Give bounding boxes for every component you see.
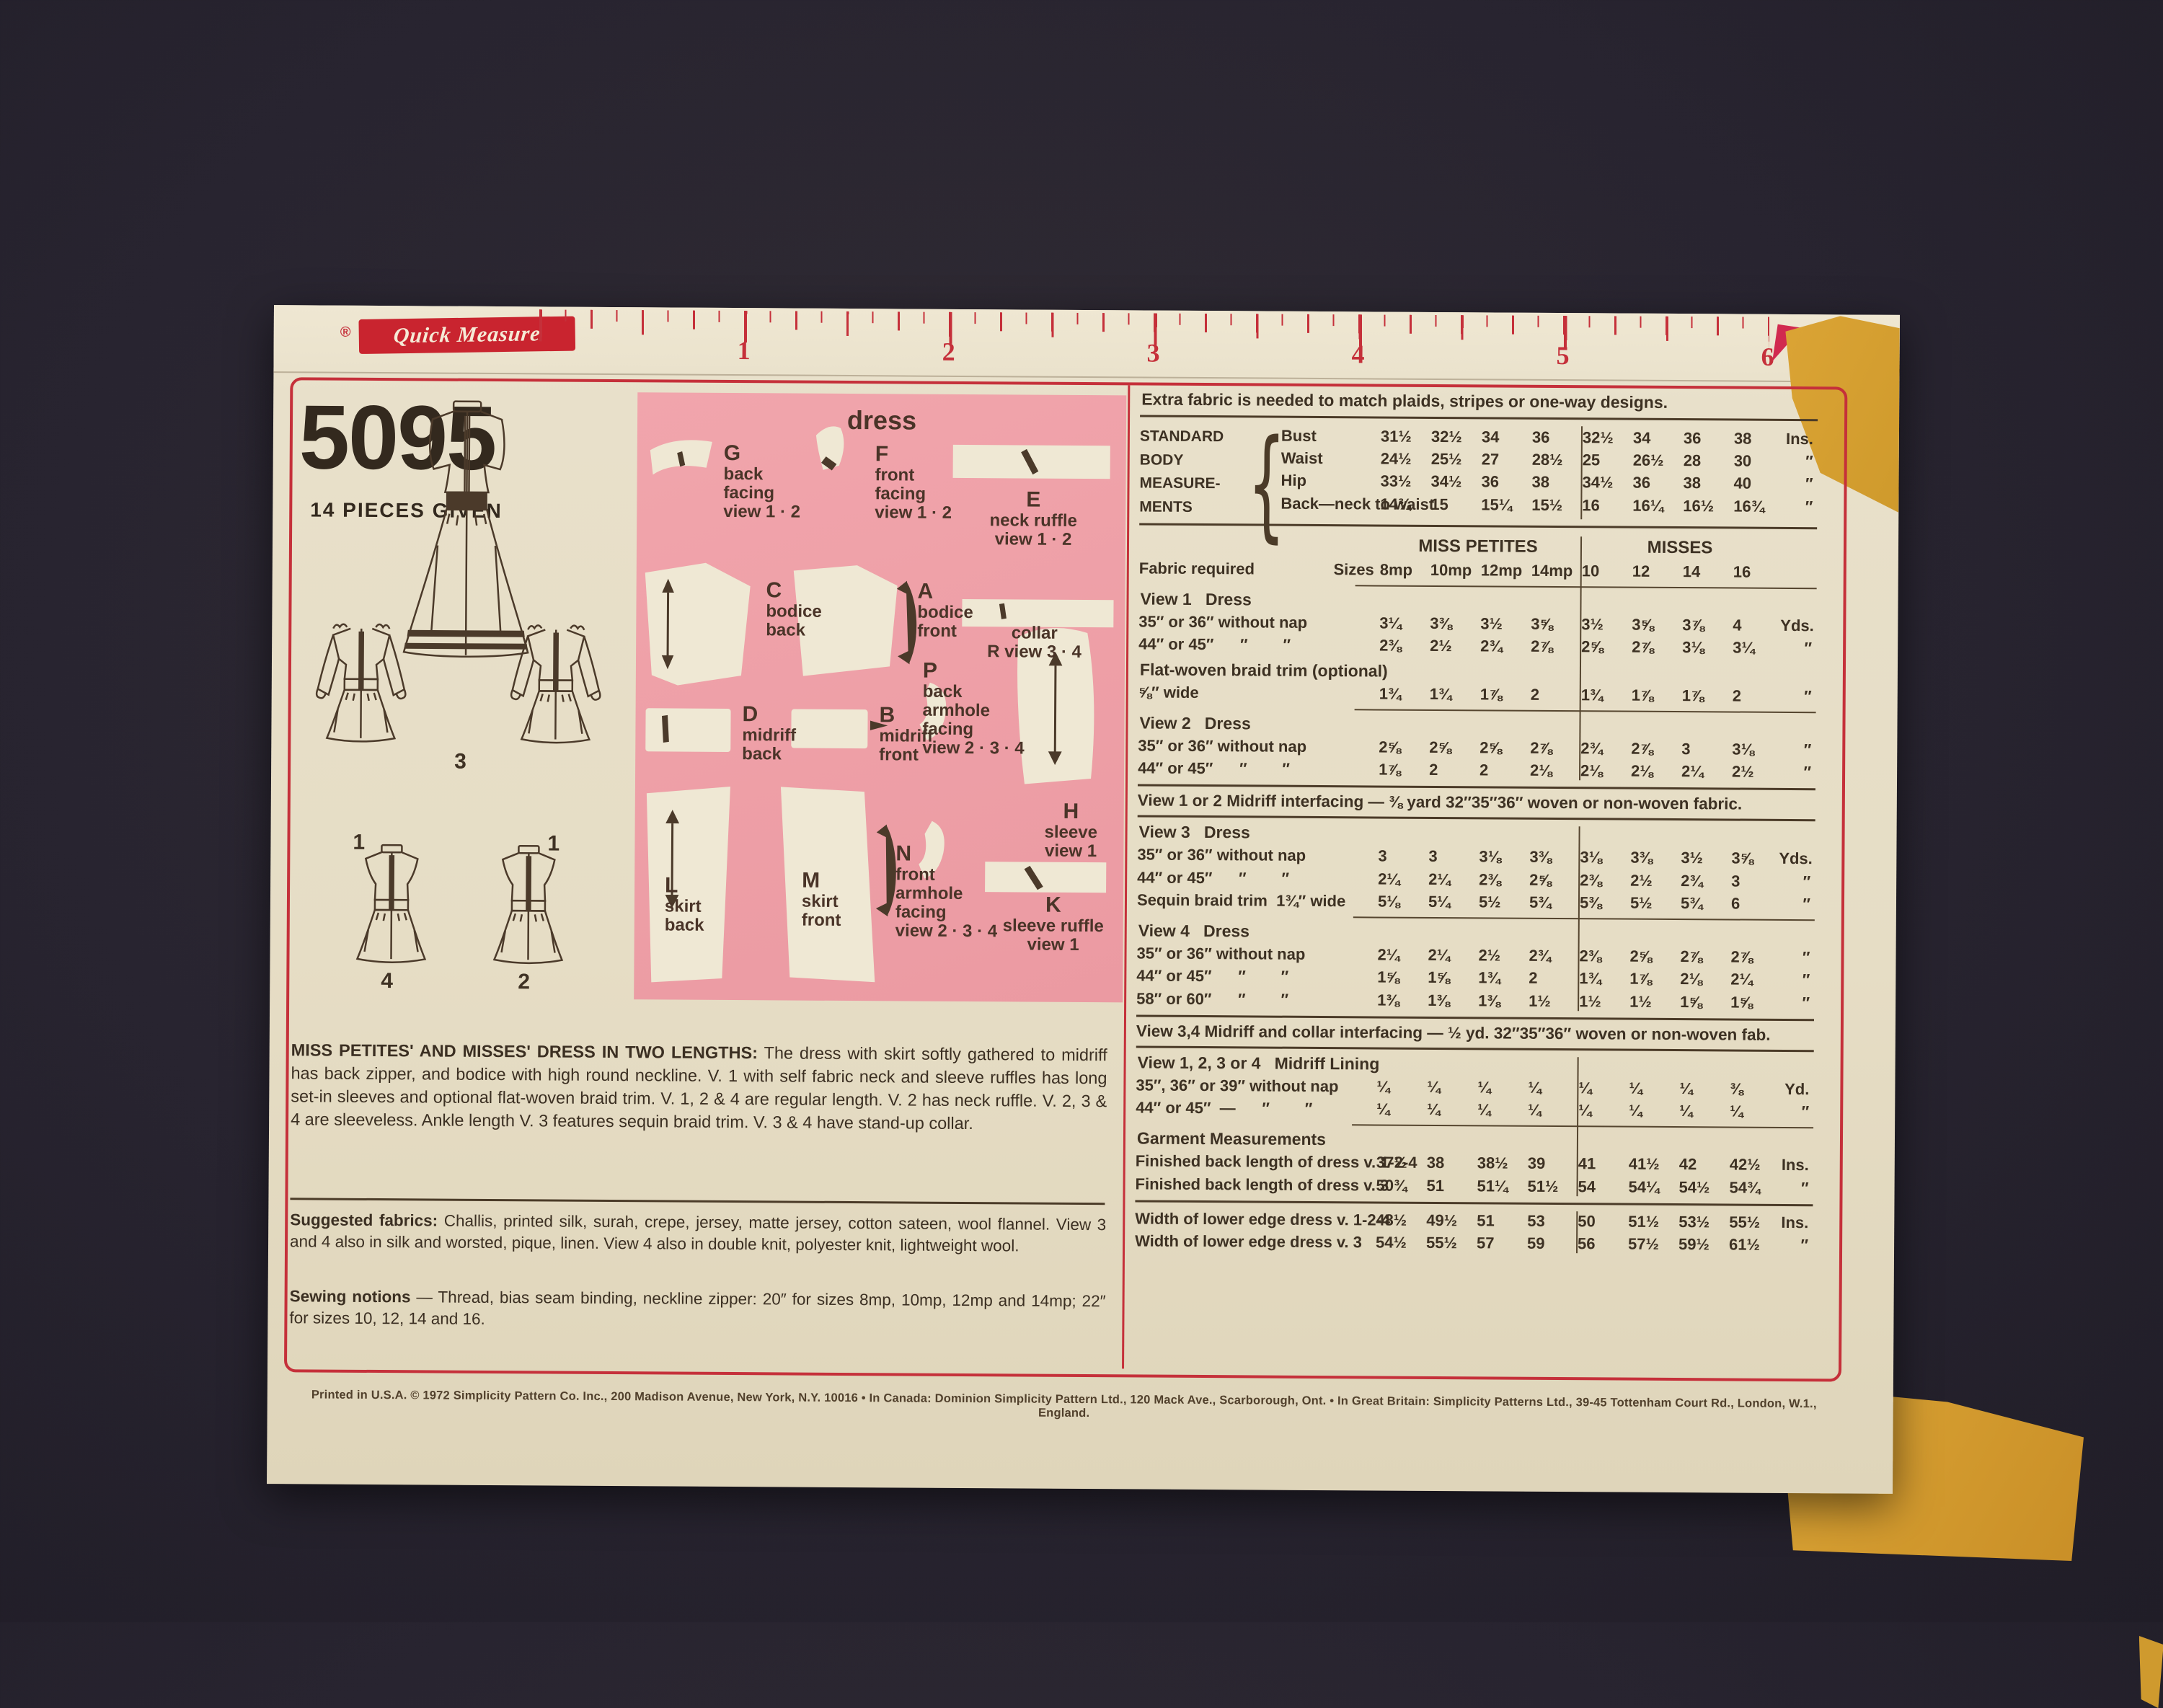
table-cell: 2⅝ <box>1426 736 1477 759</box>
piece-label-line: back <box>766 621 822 640</box>
piece-label-line: facing <box>922 720 1025 740</box>
table-cell: ″ <box>1781 495 1813 518</box>
table-cell: 16½ <box>1680 495 1730 518</box>
view-4-heading: View 4 Dress <box>1138 921 1815 945</box>
table-cell: 5¾ <box>1678 892 1728 915</box>
table-cell: 44″ or 45″ — ″ ″ <box>1136 1097 1374 1120</box>
piece-label-line: front <box>802 911 841 930</box>
table-cell: 35″, 36″ or 39″ without nap <box>1136 1074 1374 1097</box>
table-cell: 2¼ <box>1425 868 1476 891</box>
table-cell: 1¾ <box>1576 968 1627 991</box>
table-cell: 36 <box>1478 471 1529 494</box>
table-cell: 48½ <box>1373 1208 1423 1231</box>
table-cell: 53 <box>1524 1210 1575 1233</box>
table-row: 58″ or 60″ ″ ″1⅜1⅜1⅜1½1½1½1⅝1⅝″ <box>1136 987 1814 1014</box>
table-cell: 59 <box>1524 1232 1575 1255</box>
table-cell: 54¼ <box>1625 1175 1676 1198</box>
ruler-number-2: 2 <box>934 337 963 367</box>
table-cell: ″ <box>1779 761 1811 784</box>
table-cell: 49½ <box>1423 1209 1474 1232</box>
table-cell: ″ <box>1779 870 1810 893</box>
lining-garment-block: View 1, 2, 3 or 4 Midriff Lining 35″, 36… <box>1135 1053 1813 1199</box>
table-cell: 2⅝ <box>1627 945 1677 968</box>
table-cell: ″ <box>1778 991 1810 1014</box>
table-row: Back—neck to waist14¾1515¼15½1616¼16½16¾… <box>1139 491 1817 518</box>
table-cell: 2⅜ <box>1376 634 1427 658</box>
table-cell: 2⅞ <box>1728 946 1778 969</box>
table-cell: 25½ <box>1428 448 1479 471</box>
pattern-envelope-back: ® Quick Measure 1 2 3 4 5 6 5095 14 PIEC… <box>267 305 1900 1494</box>
table-cell: 16 <box>1579 494 1629 517</box>
table-cell: 38 <box>1529 471 1579 494</box>
table-cell: ¼ <box>1575 1099 1626 1122</box>
table-cell: 5½ <box>1476 890 1526 913</box>
sizes-word: Sizes <box>1333 558 1374 581</box>
table-cell: 2⅝ <box>1477 736 1527 759</box>
table-cell: 42 <box>1676 1153 1727 1176</box>
table-cell: 54 <box>1575 1175 1625 1198</box>
table-cell: 3⅜ <box>1526 846 1577 869</box>
view-1-label: 1 <box>353 831 365 855</box>
table-cell: ⅝″ wide <box>1138 681 1376 704</box>
sewing-notions-label: Sewing notions <box>290 1287 411 1306</box>
table-cell: 44″ or 45″ ″ ″ <box>1138 757 1376 781</box>
table-cell: 1¾ <box>1427 683 1477 706</box>
piece-letter: A <box>918 580 974 604</box>
table-cell: 2⅛ <box>1677 968 1728 991</box>
table-cell: 35″ or 36″ without nap <box>1136 942 1374 966</box>
table-cell: 2⅛ <box>1628 760 1678 783</box>
table-cell: 2⅝ <box>1526 868 1577 891</box>
table-cell: 2¼ <box>1728 968 1778 991</box>
table-cell: 1¾ <box>1376 682 1427 705</box>
yardage-table: Extra fabric is needed to match plaids, … <box>1135 386 1818 1256</box>
piece-F-front-facing: Ffrontfacingview 1 · 2 <box>875 443 952 523</box>
table-cell: 35″ or 36″ without nap <box>1138 734 1376 758</box>
table-cell: 28½ <box>1529 448 1580 472</box>
table-cell: 38½ <box>1474 1152 1525 1175</box>
view-4-label: 4 <box>381 969 393 994</box>
piece-N-front-armhole-facing: Nfrontarmholefacingview 2 · 3 · 4 <box>895 842 998 941</box>
table-cell: 1¾ <box>1578 683 1629 707</box>
table-cell: 34½ <box>1579 472 1629 495</box>
piece-label-line: back <box>665 916 704 935</box>
ruler-number-3: 3 <box>1139 337 1168 368</box>
description-title: MISS PETITES' AND MISSES' DRESS IN TWO L… <box>291 1040 758 1062</box>
table-cell: 59½ <box>1676 1233 1726 1256</box>
piece-R-collar: collarR view 3 · 4 <box>953 624 1115 662</box>
sewing-notions: Sewing notions — Thread, bias seam bindi… <box>289 1286 1105 1334</box>
table-cell: 3⅞ <box>1679 614 1730 637</box>
table-cell: 25 <box>1580 448 1630 472</box>
piece-D-midriff-back: Dmidriffback <box>742 703 796 764</box>
piece-letter: E <box>954 488 1113 513</box>
sizes-row: Fabric requiredSizes 8mp 10mp 12mp 14mp … <box>1139 557 1817 583</box>
piece-C-bodice-back: Cbodiceback <box>766 579 822 640</box>
view-3-heading: View 3 Dress <box>1138 823 1815 846</box>
table-cell: ¼ <box>1676 1099 1727 1123</box>
piece-label-line: front <box>895 866 998 885</box>
table-cell: 2 <box>1528 683 1578 706</box>
table-cell: 1⅝ <box>1677 991 1728 1014</box>
table-cell: Ins. <box>1782 428 1813 451</box>
table-cell: 1⅝ <box>1374 966 1425 989</box>
table-cell: 55½ <box>1726 1211 1777 1234</box>
table-cell: 2⅜ <box>1576 944 1627 968</box>
table-cell: ¼ <box>1374 1098 1424 1121</box>
piece-label-line: midriff <box>742 726 796 745</box>
table-cell: ″ <box>1777 1176 1808 1199</box>
piece-label-line: back <box>742 745 796 764</box>
table-cell: 2½ <box>1475 944 1526 967</box>
table-cell: 2¾ <box>1526 944 1576 968</box>
table-cell: 3 <box>1375 845 1425 868</box>
table-cell: 1⅜ <box>1374 988 1425 1012</box>
table-cell: 53½ <box>1676 1211 1726 1234</box>
table-cell: 39 <box>1525 1152 1575 1175</box>
table-cell: ¼ <box>1727 1100 1777 1123</box>
piece-label-line: facing <box>723 484 800 503</box>
table-cell: 61½ <box>1726 1233 1777 1256</box>
table-cell: 1⅞ <box>1376 758 1426 782</box>
table-cell: 14¾ <box>1377 492 1428 516</box>
table-cell: 3⅝ <box>1728 847 1779 870</box>
table-cell: 50 <box>1575 1210 1625 1233</box>
piece-K-sleeve-ruffle: Ksleeve ruffleview 1 <box>985 893 1123 955</box>
table-cell: 1⅜ <box>1425 988 1475 1012</box>
table-row: Sequin braid trim 1¾″ wide5⅛5¼5½5¾5⅜5½5¾… <box>1137 888 1815 915</box>
table-cell: 2 <box>1526 967 1576 990</box>
table-cell: 2⅞ <box>1528 635 1578 658</box>
table-cell: 27 <box>1479 448 1529 472</box>
table-cell: 2 <box>1730 684 1780 707</box>
table-cell: 1⅝ <box>1728 991 1778 1014</box>
table-cell: 3⅜ <box>1627 846 1678 870</box>
fabric-required-block: MISS PETITES MISSES Fabric requiredSizes… <box>1138 532 1817 783</box>
table-cell: 37½ <box>1374 1151 1424 1174</box>
table-cell: 44″ or 45″ ″ ″ <box>1136 965 1374 988</box>
piece-H-sleeve: Hsleeveview 1 <box>1044 800 1097 862</box>
table-cell: ¼ <box>1474 1098 1525 1121</box>
table-cell: 38 <box>1424 1151 1474 1174</box>
piece-G-back-facing: Gbackfacingview 1 · 2 <box>723 442 800 522</box>
piece-letter: F <box>875 443 952 466</box>
piece-L-skirt-back: Lskirtback <box>665 874 704 935</box>
table-cell: 2⅝ <box>1376 735 1426 758</box>
table-cell: 36 <box>1681 427 1731 450</box>
table-cell: Finished back length of dress v. 1-2-4 <box>1136 1150 1374 1174</box>
midriff-interfacing-note: View 1 or 2 Midriff interfacing — ⅜ yard… <box>1138 792 1815 815</box>
piece-letter: D <box>742 703 796 727</box>
table-cell: 16¼ <box>1629 494 1680 517</box>
table-cell: 3⅛ <box>1729 738 1779 761</box>
table-cell: Ins. <box>1777 1154 1809 1177</box>
table-cell: 3½ <box>1578 613 1629 636</box>
piece-label-line: view 1 <box>985 935 1122 955</box>
piece-label-line: back <box>923 683 1025 702</box>
table-cell: 1½ <box>1526 989 1576 1012</box>
table-row: Finished back length of dress v. 350¾515… <box>1135 1172 1813 1199</box>
table-cell: 2⅞ <box>1629 636 1679 659</box>
table-cell: 5⅜ <box>1577 891 1627 914</box>
table-cell: 1⅞ <box>1679 684 1730 707</box>
midriff-lining-heading: View 1, 2, 3 or 4 Midriff Lining <box>1138 1053 1814 1076</box>
table-cell: 54¾ <box>1726 1176 1777 1199</box>
table-row: 44″ or 45″ ″ ″1⅞222⅛2⅛2⅛2¼2½″ <box>1138 757 1815 784</box>
table-cell: 33½ <box>1377 470 1428 493</box>
flap-nub <box>2138 1636 2163 1708</box>
piece-letter: G <box>724 442 801 466</box>
table-cell: 34 <box>1479 425 1529 448</box>
piece-label-line: sleeve ruffle <box>985 917 1122 937</box>
table-cell: 3½ <box>1477 613 1528 636</box>
piece-label-line: R view 3 · 4 <box>953 642 1115 662</box>
table-cell: 3¼ <box>1376 612 1427 635</box>
table-cell: Yds. <box>1780 614 1812 637</box>
table-cell: ¼ <box>1374 1075 1424 1098</box>
size-group-headers: MISS PETITES MISSES <box>1139 532 1817 561</box>
table-cell: 31½ <box>1378 425 1428 448</box>
table-cell: 5¾ <box>1526 891 1577 914</box>
view-1-heading: View 1 Dress <box>1140 590 1816 614</box>
table-cell: 1¾ <box>1475 967 1526 990</box>
table-cell: 38 <box>1680 472 1730 495</box>
table-cell: Sequin braid trim 1¾″ wide <box>1137 888 1375 912</box>
table-cell: 51 <box>1474 1209 1524 1232</box>
table-cell: ¼ <box>1676 1077 1727 1100</box>
miss-petites-header: MISS PETITES <box>1377 534 1579 559</box>
table-cell: ¼ <box>1525 1076 1575 1099</box>
table-cell: 36 <box>1629 472 1680 495</box>
table-cell: 1⅜ <box>1475 989 1526 1012</box>
table-cell: Ins. <box>1777 1211 1808 1234</box>
piece-label-line: armhole <box>895 885 998 904</box>
piece-label-line: front <box>875 466 952 486</box>
piece-label-line: armhole <box>923 702 1025 721</box>
table-cell: 15½ <box>1529 493 1579 516</box>
piece-letter: N <box>895 842 998 866</box>
ruler-number-4: 4 <box>1343 339 1372 369</box>
table-cell: ″ <box>1777 1234 1808 1257</box>
table-cell: 3¼ <box>1730 637 1780 660</box>
table-cell: ″ <box>1782 450 1813 473</box>
table-cell: 5½ <box>1627 891 1678 914</box>
piece-letter: C <box>766 579 823 603</box>
table-cell: 57 <box>1474 1231 1524 1255</box>
piece-label-line: facing <box>895 903 998 923</box>
table-cell: 3⅛ <box>1577 846 1627 870</box>
table-row: Width of lower edge dress v. 354½55½5759… <box>1135 1229 1813 1256</box>
quick-measure-ruler: ® Quick Measure 1 2 3 4 5 6 <box>273 305 1900 383</box>
table-row: ⅝″ wide1¾1¾1⅞21¾1⅞1⅞2″ <box>1138 681 1816 707</box>
table-cell: 3½ <box>1678 846 1728 870</box>
braid-trim-heading: Flat-woven braid trim (optional) <box>1140 660 1816 683</box>
table-cell: 2¾ <box>1578 737 1628 760</box>
table-cell: 55½ <box>1423 1231 1474 1255</box>
table-cell: Width of lower edge dress v. 3 <box>1135 1229 1373 1253</box>
table-cell: 54½ <box>1676 1176 1726 1199</box>
table-cell: 2⅛ <box>1527 759 1578 782</box>
table-cell: 6 <box>1728 892 1779 915</box>
piece-label-line: view 2 · 3 · 4 <box>922 739 1025 758</box>
table-cell: 35″ or 36″ without nap <box>1137 844 1375 867</box>
table-cell: 44″ or 45″ ″ ″ <box>1138 633 1376 657</box>
table-cell: 2½ <box>1729 761 1779 784</box>
table-cell: 44″ or 45″ ″ ″ <box>1137 866 1375 890</box>
view-2-heading: View 2 Dress <box>1139 713 1815 737</box>
table-cell: 51½ <box>1625 1210 1676 1233</box>
piece-label-line: view 1 · 2 <box>875 503 952 523</box>
table-cell: 2¾ <box>1678 870 1728 893</box>
table-cell: 5⅛ <box>1375 890 1425 913</box>
piece-letter: K <box>985 893 1122 918</box>
table-cell: 36 <box>1529 426 1580 449</box>
table-cell: 30 <box>1731 450 1782 473</box>
quick-measure-label: Quick Measure <box>392 322 541 348</box>
body-measurements: STANDARD BODY MEASURE- MENTS { Bust31½32… <box>1139 422 1818 522</box>
view-1-label: 1 <box>547 831 559 856</box>
table-cell: 3⅛ <box>1476 846 1526 869</box>
table-cell: 58″ or 60″ ″ ″ <box>1136 987 1374 1011</box>
table-cell: ¼ <box>1525 1099 1575 1122</box>
table-cell: 38 <box>1731 427 1782 450</box>
table-cell: 50¾ <box>1373 1174 1423 1197</box>
ruler-number-1: 1 <box>730 335 758 366</box>
dress-views-illustration: 3 1 1 4 2 <box>281 391 624 1032</box>
table-cell: 15¼ <box>1478 493 1529 516</box>
table-cell: 1⅞ <box>1629 683 1679 707</box>
table-cell: 41 <box>1575 1152 1626 1175</box>
table-cell: ¼ <box>1424 1076 1474 1099</box>
table-cell: 2¼ <box>1375 867 1425 890</box>
table-cell: 2⅞ <box>1628 738 1678 761</box>
table-cell: 1⅝ <box>1425 966 1475 989</box>
table-cell: 1⅞ <box>1477 683 1528 706</box>
table-cell: 2½ <box>1427 634 1477 658</box>
table-cell: ″ <box>1780 685 1812 708</box>
table-cell: 5¼ <box>1425 890 1476 913</box>
collar-interfacing-note: View 3,4 Midriff and collar interfacing … <box>1136 1022 1814 1045</box>
piece-label-line: view 1 · 2 <box>723 503 800 522</box>
table-cell: Width of lower edge dress v. 1-2-4 <box>1135 1207 1373 1231</box>
table-cell: Yd. <box>1777 1078 1809 1101</box>
table-cell: 2⅛ <box>1578 759 1628 782</box>
table-cell: 42½ <box>1727 1154 1777 1177</box>
table-cell: ″ <box>1778 946 1810 969</box>
table-cell: 57½ <box>1625 1233 1676 1256</box>
table-cell: 1½ <box>1627 990 1677 1013</box>
piece-letter: H <box>1045 800 1098 824</box>
table-cell: 56 <box>1575 1232 1625 1255</box>
table-cell: 2⅝ <box>1578 636 1629 659</box>
piece-M-skirt-front: Mskirtfront <box>802 870 841 931</box>
piece-label-line: view 1 <box>1044 842 1097 861</box>
piece-label-line: view 1 · 2 <box>954 530 1113 549</box>
garment-measurements-heading: Garment Measurements <box>1137 1129 1813 1153</box>
table-cell: 3 <box>1728 870 1779 893</box>
sewing-notions-body: — Thread, bias seam binding, neckline zi… <box>289 1288 1105 1328</box>
table-cell: 2¼ <box>1425 944 1475 967</box>
table-cell: 4 <box>1730 614 1780 637</box>
table-cell: 15 <box>1428 493 1478 516</box>
table-cell: 34 <box>1630 427 1681 450</box>
table-cell: 32½ <box>1428 425 1479 448</box>
table-cell: 51½ <box>1524 1174 1575 1198</box>
piece-label-line: bodice <box>917 603 973 622</box>
piece-P-back-armhole-facing: Pbackarmholefacingview 2 · 3 · 4 <box>922 660 1025 758</box>
table-cell: ¼ <box>1575 1076 1626 1099</box>
piece-label-line: bodice <box>766 603 822 621</box>
registered-mark: ® <box>340 324 351 341</box>
table-cell: 2⅞ <box>1527 737 1578 760</box>
view-3-4-block: View 3 Dress 35″ or 36″ without nap333⅛3… <box>1136 823 1815 1014</box>
table-cell: 32½ <box>1580 426 1630 449</box>
table-cell: ¼ <box>1424 1098 1474 1121</box>
piece-label-line: neck ruffle <box>954 511 1113 531</box>
piece-label-line: skirt <box>802 893 841 911</box>
table-cell: 2¾ <box>1477 635 1528 658</box>
extra-fabric-note: Extra fabric is needed to match plaids, … <box>1141 389 1818 413</box>
table-cell: 3⅝ <box>1528 613 1578 636</box>
table-cell: 3⅝ <box>1629 614 1679 637</box>
piece-letter: L <box>665 874 704 898</box>
table-cell: 3 <box>1678 738 1729 761</box>
fabric-required-label: Fabric required <box>1139 557 1255 580</box>
misses-header: MISSES <box>1579 535 1781 561</box>
table-cell: ″ <box>1778 968 1810 991</box>
suggested-fabrics-label: Suggested fabrics: <box>290 1211 438 1229</box>
table-cell: 3⅜ <box>1427 612 1477 635</box>
piece-letter: M <box>802 870 841 893</box>
table-cell: 2¼ <box>1374 944 1425 967</box>
ruler-ticks: 1 2 3 4 5 6 <box>539 309 1769 350</box>
table-cell: ¼ <box>1626 1076 1676 1099</box>
table-cell: 51 <box>1423 1174 1474 1197</box>
table-cell: ⅜ <box>1727 1077 1777 1100</box>
copyright-line: Printed in U.S.A. © 1972 Simplicity Patt… <box>296 1388 1832 1425</box>
table-row: 44″ or 45″ ″ ″2⅜2½2¾2⅞2⅝2⅞3⅛3¼″ <box>1138 633 1816 660</box>
table-cell: 2⅞ <box>1677 945 1728 968</box>
table-cell: 40 <box>1730 472 1781 495</box>
table-cell: 24½ <box>1378 448 1428 471</box>
piece-E-neck-ruffle: Eneck ruffleview 1 · 2 <box>954 488 1113 550</box>
table-cell: ″ <box>1779 738 1811 761</box>
table-cell: Yds. <box>1779 847 1810 870</box>
view-3-label: 3 <box>454 750 466 774</box>
table-cell: ″ <box>1781 472 1813 495</box>
table-cell: 2½ <box>1627 869 1678 892</box>
table-cell: 34½ <box>1428 470 1478 493</box>
table-cell: 2⅜ <box>1577 869 1627 892</box>
piece-letter: P <box>923 660 1025 683</box>
table-cell: ″ <box>1779 893 1810 916</box>
standard-body-measurements-label: STANDARD BODY MEASURE- MENTS <box>1139 425 1224 519</box>
table-cell: 2¼ <box>1678 760 1729 783</box>
table-cell: 2 <box>1426 758 1477 782</box>
table-cell: 51¼ <box>1474 1174 1524 1198</box>
table-cell: Finished back length of dress v. 3 <box>1135 1172 1373 1196</box>
table-cell: ″ <box>1777 1100 1809 1123</box>
ruler-number-5: 5 <box>1548 340 1577 371</box>
piece-label-line: view 2 · 3 · 4 <box>895 922 998 942</box>
table-cell: 28 <box>1681 449 1731 472</box>
table-cell: 16¾ <box>1730 495 1781 518</box>
table-cell: 41½ <box>1626 1153 1676 1176</box>
piece-label-line: collar <box>953 624 1115 643</box>
table-cell: 3 <box>1425 845 1476 868</box>
piece-label-line: skirt <box>665 898 704 916</box>
table-row: 44″ or 45″ — ″ ″¼¼¼¼¼¼¼¼″ <box>1136 1097 1813 1123</box>
